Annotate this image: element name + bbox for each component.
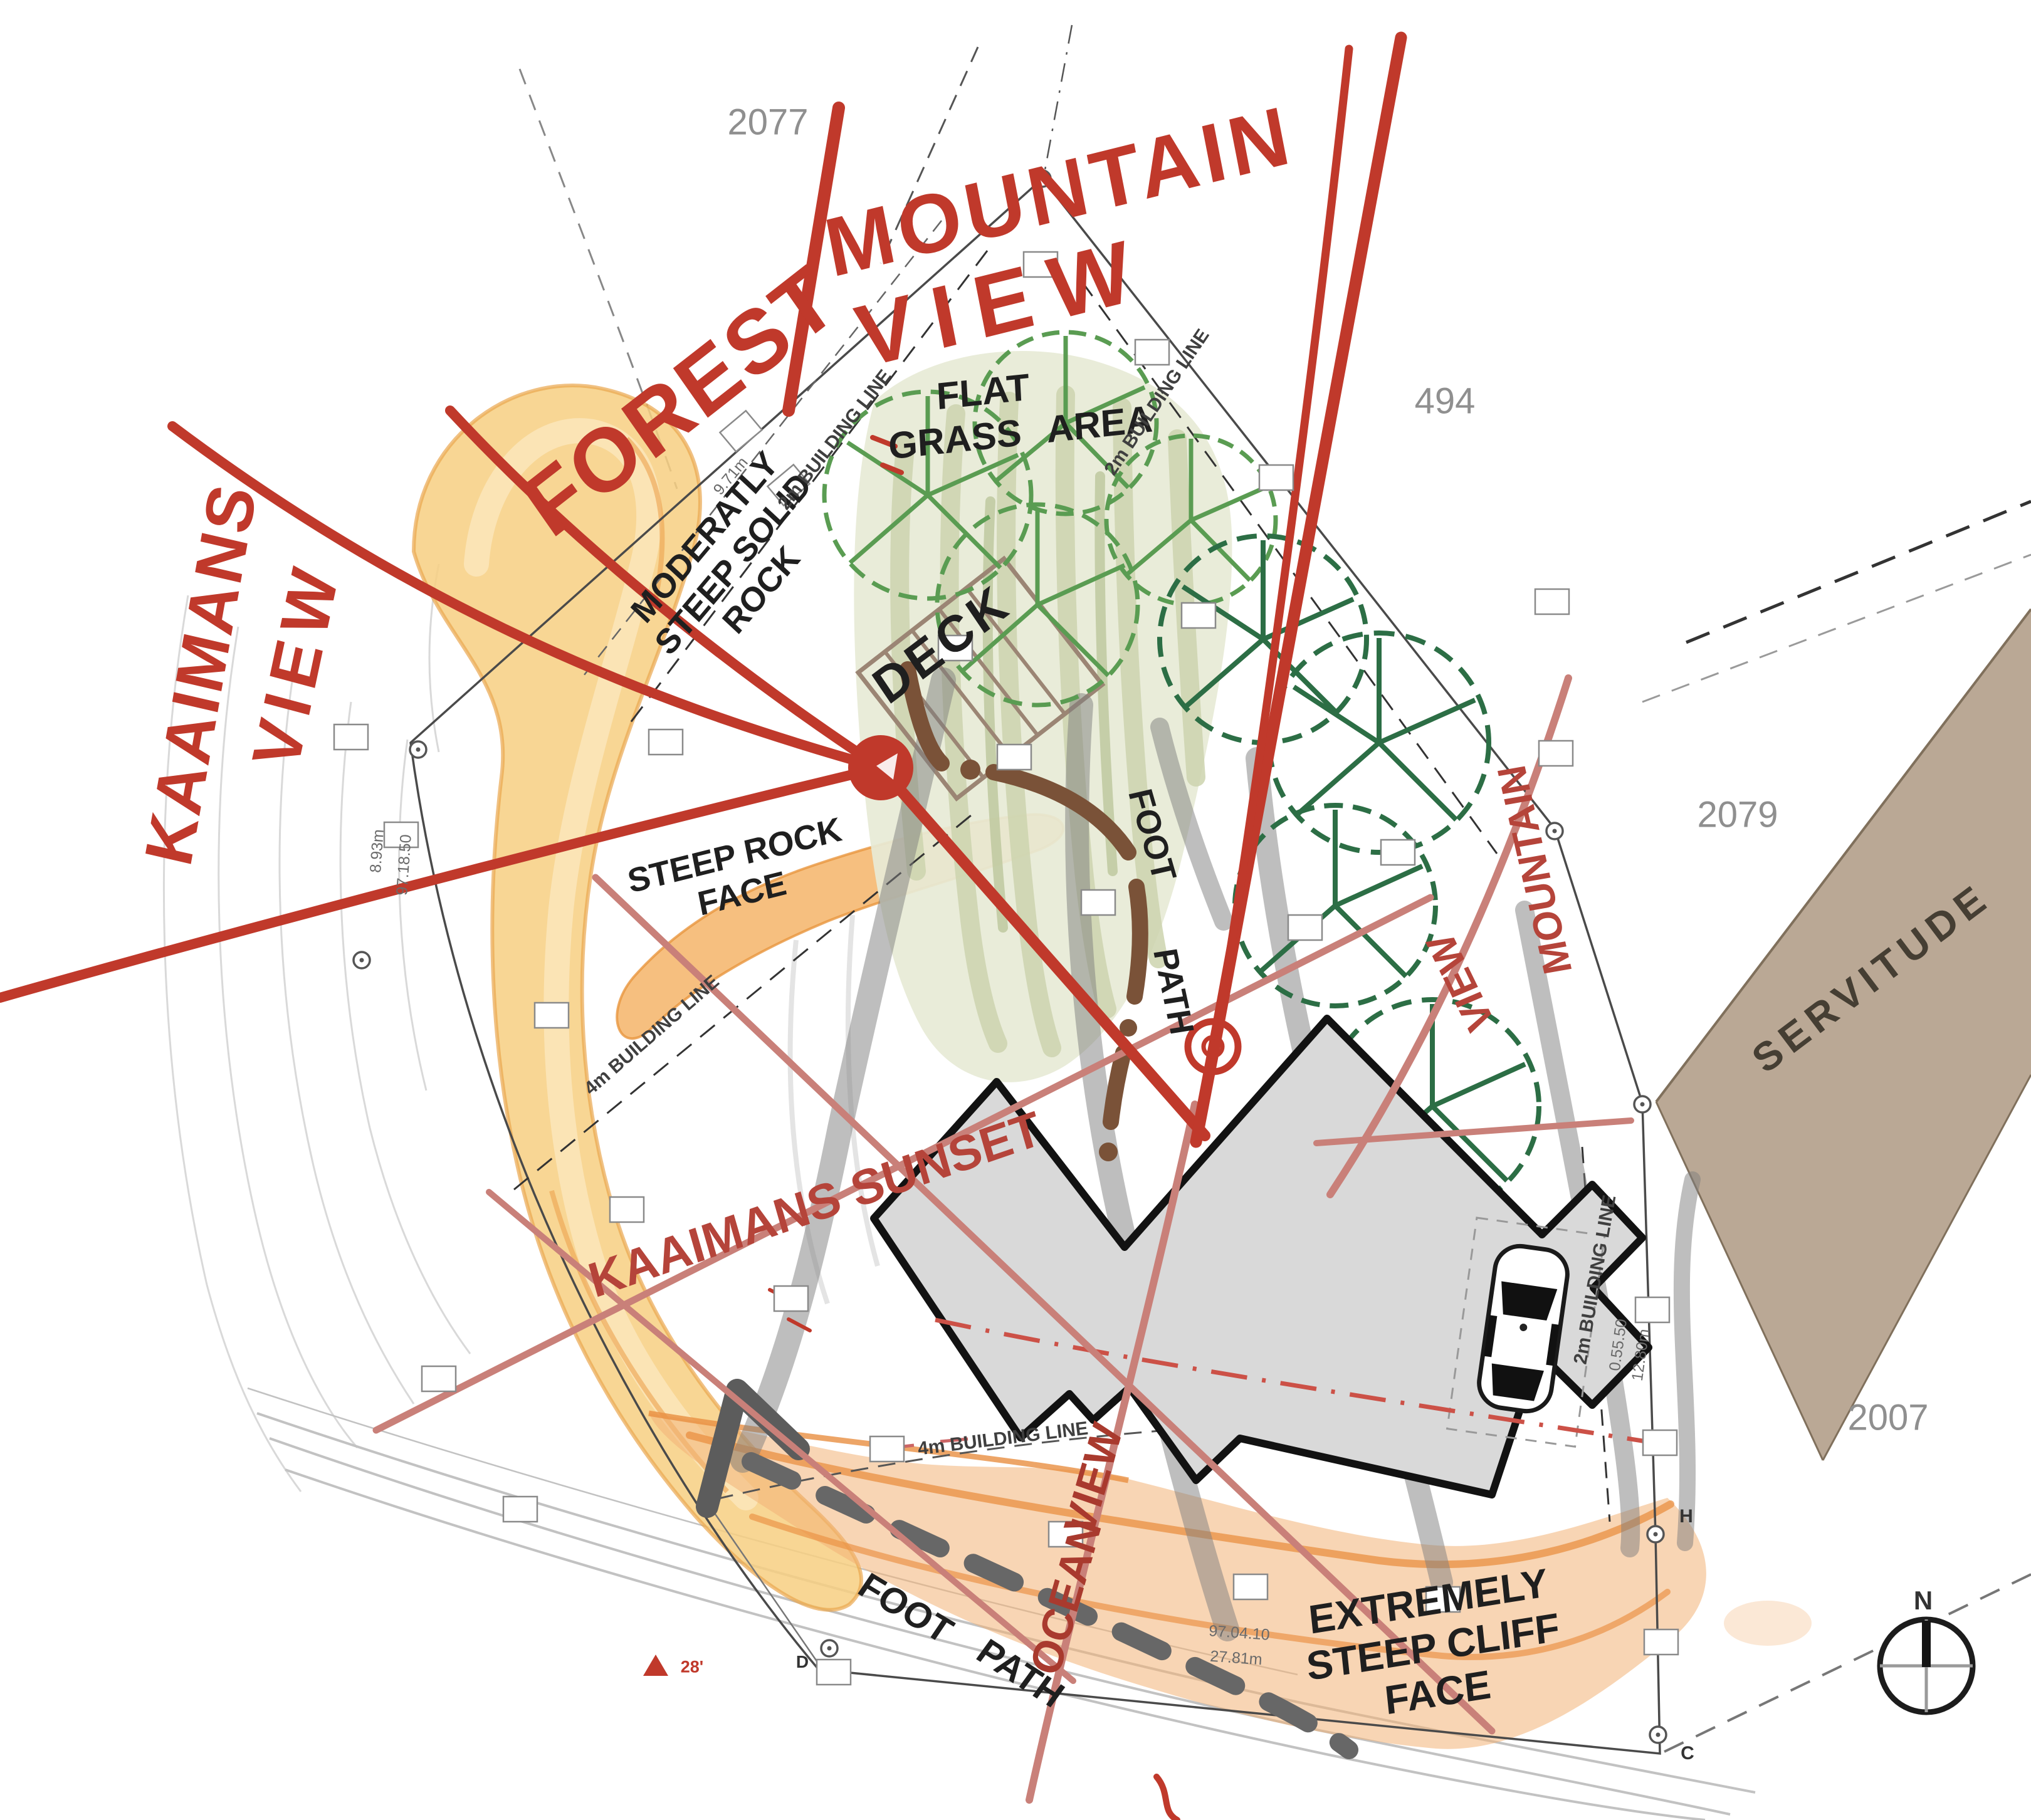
erf-number-494: 494 [1415,380,1476,422]
angle-mark-label: 28' [681,1658,703,1677]
point-h-label: H [1679,1506,1693,1527]
point-c-label: C [1681,1743,1694,1764]
point-d-label: D [796,1652,809,1672]
north-compass [1880,1619,1973,1712]
north-needle-icon [1922,1621,1931,1667]
dim-bottom-b: 27.81m [1209,1648,1262,1670]
compass-north-label: N [1914,1586,1933,1616]
erf-number-2077: 2077 [727,102,808,144]
erf-number-2079: 2079 [1697,794,1778,836]
erf-number-2007: 2007 [1847,1397,1928,1439]
tree-icon [1269,633,1489,852]
site-plan-sketch: FOREST MOUNTAIN VIEW KAAIMANS VIEW KAAIM… [0,0,2031,1820]
angle-marker-icon [643,1655,668,1676]
servitude-strip [1656,609,2031,1460]
view-hub-1 [848,735,913,800]
dim-left-a: 8.93m [367,829,388,873]
